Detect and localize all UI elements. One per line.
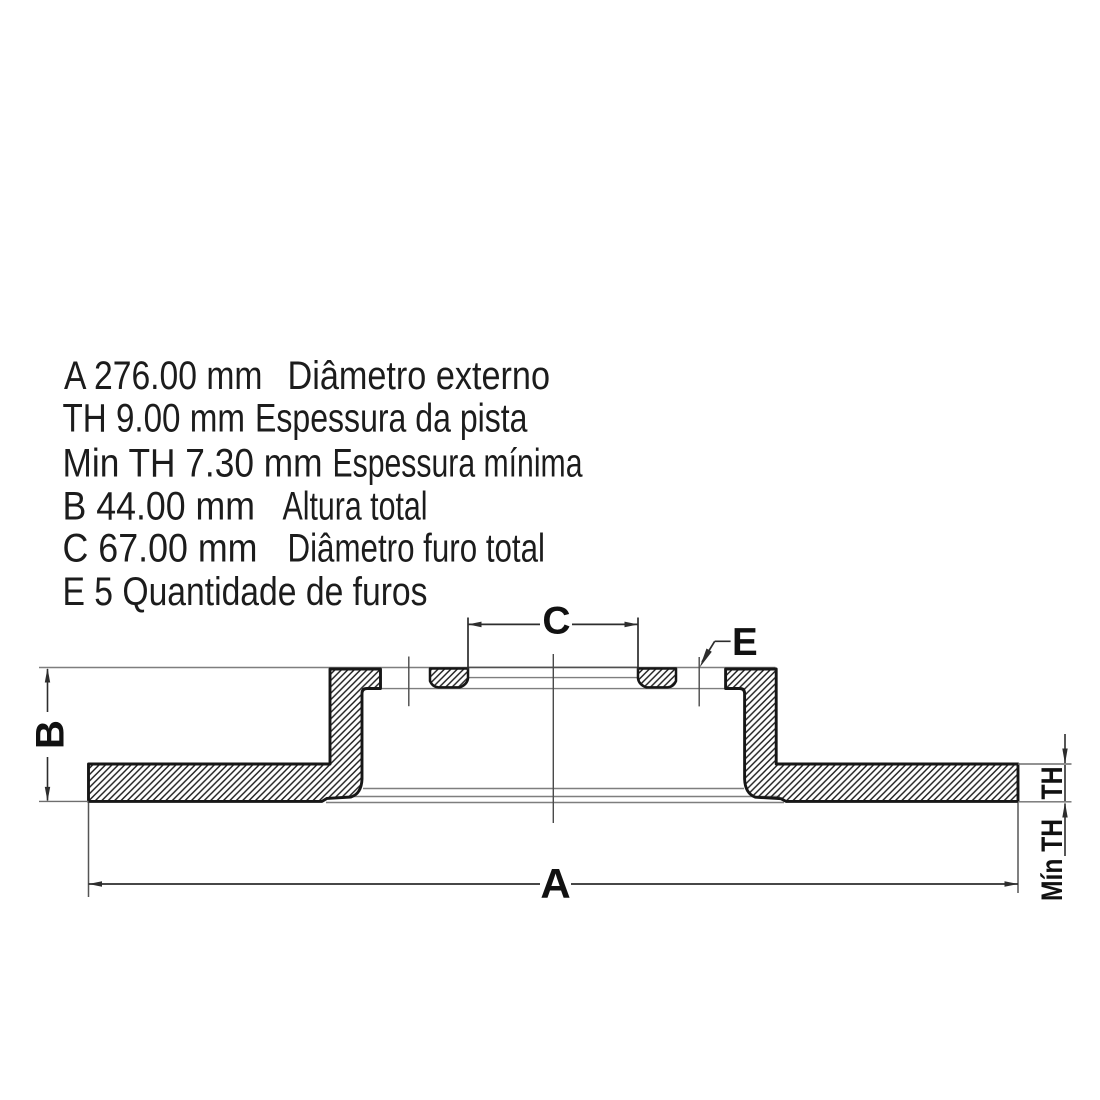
svg-text:Espessura da pista: Espessura da pista	[255, 397, 528, 441]
svg-text:B: B	[29, 720, 73, 749]
svg-text:A: A	[540, 860, 570, 907]
svg-text:Min TH 7.30 mm: Min TH 7.30 mm	[63, 442, 323, 486]
svg-text:Mín TH: Mín TH	[1036, 819, 1069, 901]
svg-text:C 67.00 mm: C 67.00 mm	[63, 527, 258, 571]
svg-text:E: E	[732, 621, 758, 664]
svg-text:Diâmetro externo: Diâmetro externo	[288, 354, 551, 398]
svg-text:Diâmetro furo total: Diâmetro furo total	[288, 527, 546, 571]
svg-text:A 276.00 mm: A 276.00 mm	[64, 354, 263, 398]
svg-text:TH 9.00 mm: TH 9.00 mm	[63, 397, 246, 441]
svg-text:B 44.00 mm: B 44.00 mm	[63, 485, 256, 529]
svg-text:C: C	[542, 600, 570, 643]
svg-text:E 5 Quantidade de furos: E 5 Quantidade de furos	[63, 570, 428, 614]
svg-text:TH: TH	[1036, 767, 1069, 800]
svg-text:Espessura mínima: Espessura mínima	[333, 442, 584, 486]
svg-text:Altura total: Altura total	[283, 485, 428, 529]
